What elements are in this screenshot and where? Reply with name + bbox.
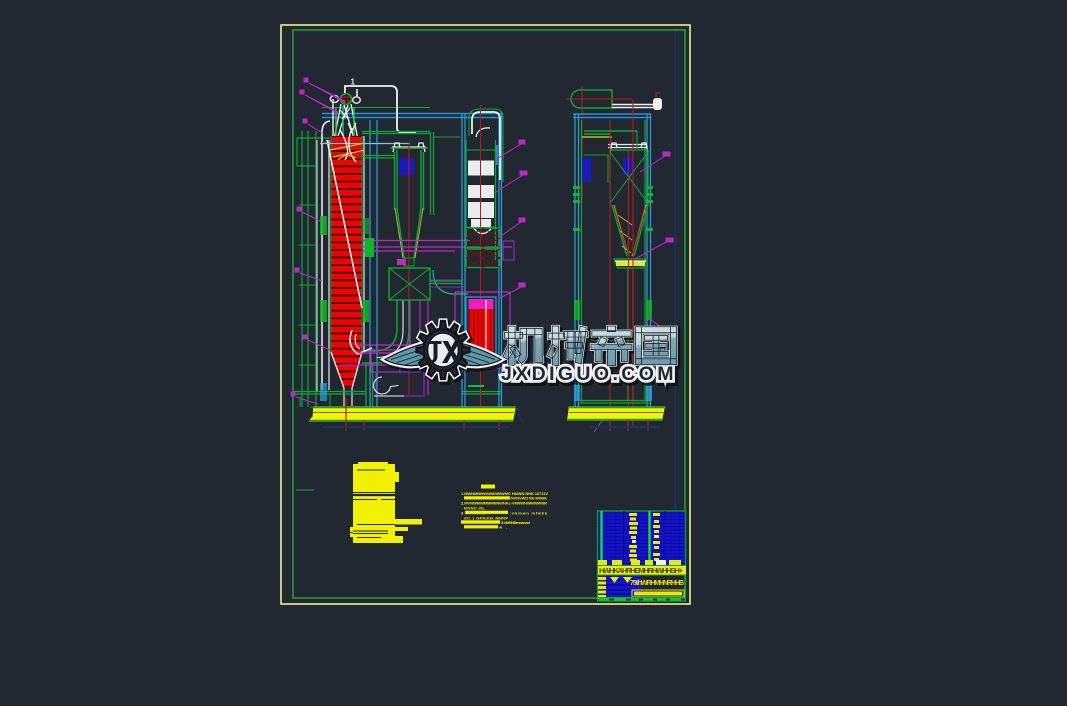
svg-text::nkmwn mfwkk: :nkmwn mfwkk: [510, 510, 548, 515]
svg-text:1: 1: [351, 78, 356, 87]
svg-text:75t/hWRHMHNRHHB: 75t/hWRHMHNRHHB: [630, 580, 684, 587]
svg-text:JXDIGUO.COM: JXDIGUO.COM: [501, 363, 675, 385]
svg-text:HWHKAHRHEMHRHWHHSH+: HWHKAHRHEMHRHWHHSH+: [599, 566, 684, 575]
